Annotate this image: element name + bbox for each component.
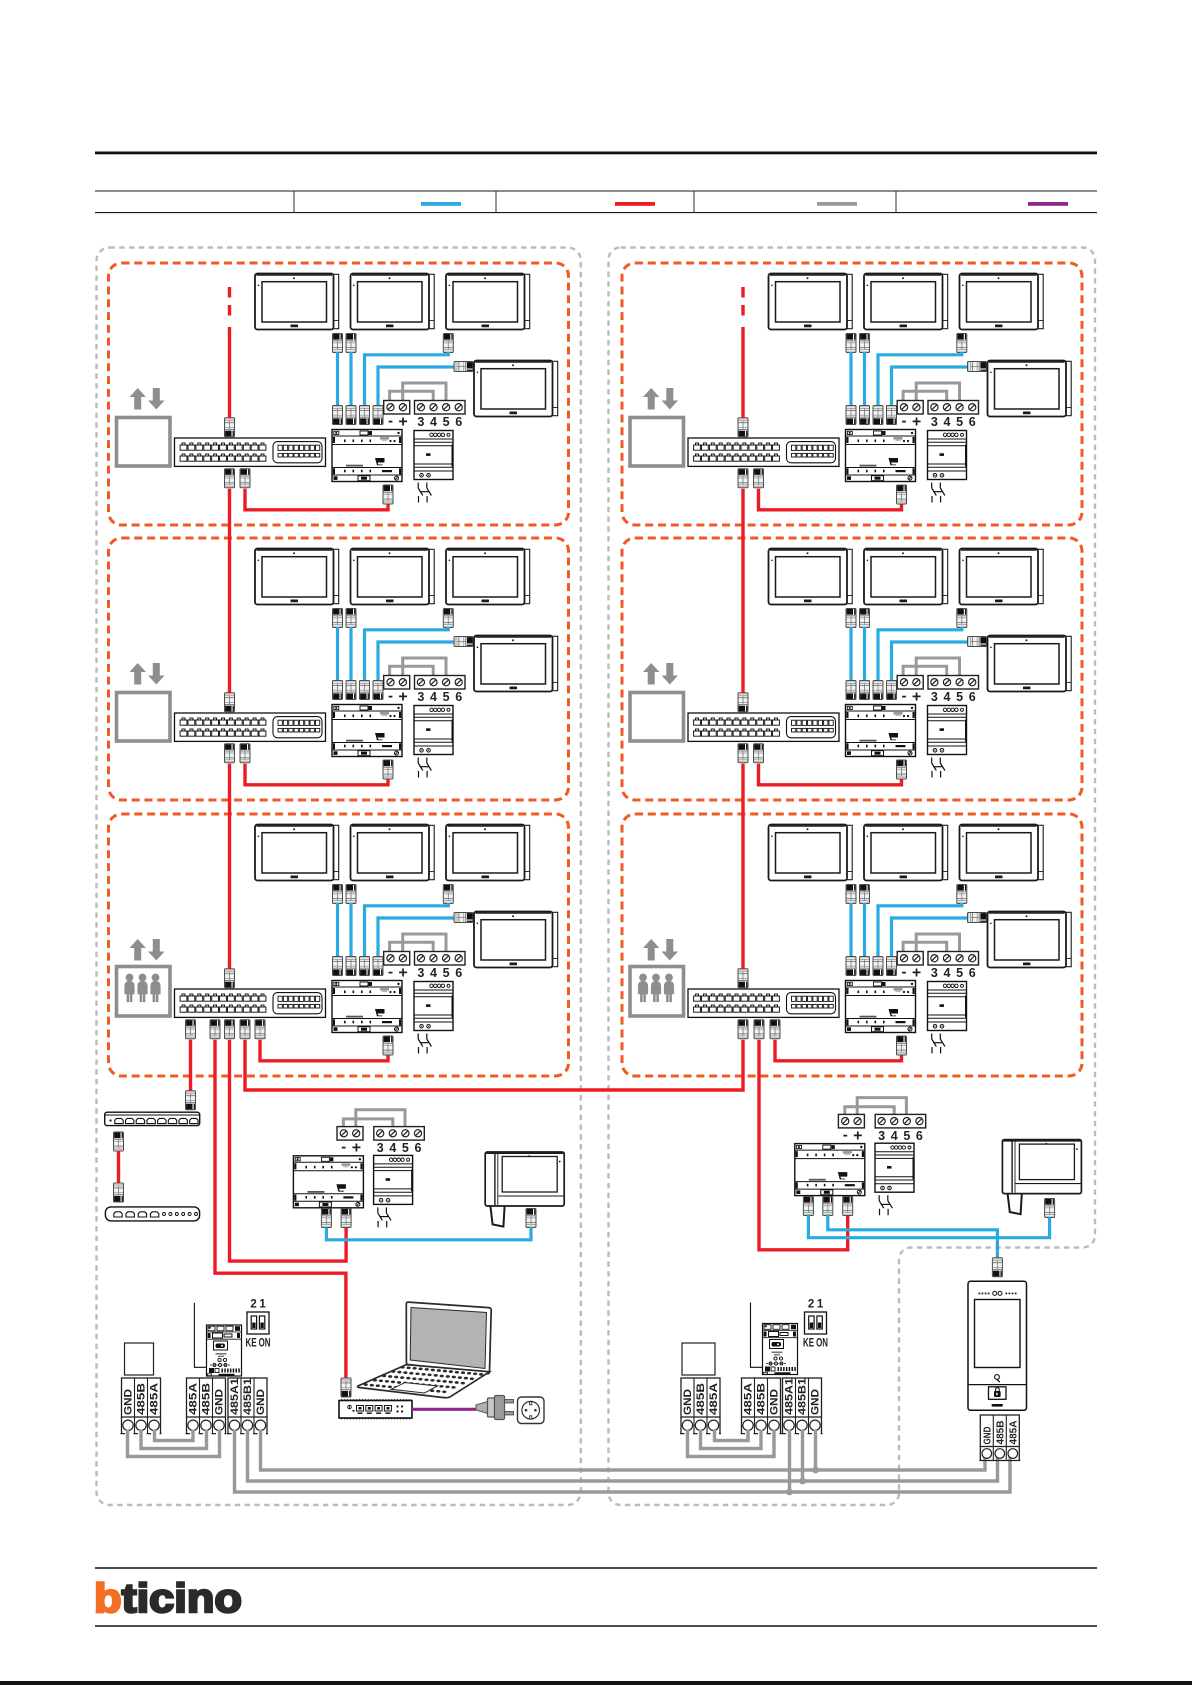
- svg-text:+: +: [352, 1140, 361, 1157]
- svg-text:+: +: [912, 414, 921, 431]
- svg-text:-: -: [902, 688, 907, 705]
- svg-text:3: 3: [931, 966, 938, 980]
- svg-text:GND: GND: [123, 1389, 135, 1415]
- svg-text:-: -: [902, 964, 907, 981]
- svg-text:GND: GND: [810, 1389, 822, 1415]
- svg-text:3: 3: [931, 415, 938, 429]
- svg-text:6: 6: [415, 1141, 422, 1155]
- svg-text:-: -: [388, 688, 393, 705]
- svg-text:4: 4: [389, 1141, 396, 1155]
- svg-text:6: 6: [969, 690, 976, 704]
- svg-text:bticino: bticino: [94, 1575, 242, 1621]
- svg-text:GND: GND: [983, 1427, 994, 1445]
- svg-text:5: 5: [956, 690, 963, 704]
- svg-text:485B: 485B: [201, 1383, 213, 1415]
- svg-text:485A: 485A: [149, 1383, 161, 1415]
- svg-text:4: 4: [944, 415, 951, 429]
- svg-text:485A: 485A: [743, 1383, 755, 1415]
- svg-text:5: 5: [903, 1129, 910, 1143]
- svg-text:3: 3: [377, 1141, 384, 1155]
- svg-text:485B: 485B: [996, 1421, 1007, 1445]
- svg-text:485A1: 485A1: [229, 1378, 241, 1415]
- svg-text:+: +: [398, 965, 407, 982]
- svg-text:1: 1: [817, 1299, 824, 1311]
- svg-text:-: -: [341, 1139, 346, 1156]
- svg-text:3: 3: [417, 415, 424, 429]
- svg-text:+: +: [398, 689, 407, 706]
- svg-text:6: 6: [969, 966, 976, 980]
- svg-text:5: 5: [443, 966, 450, 980]
- svg-text:5: 5: [956, 415, 963, 429]
- svg-text:485A: 485A: [708, 1383, 720, 1415]
- svg-text:+: +: [912, 689, 921, 706]
- svg-text:485B1: 485B1: [797, 1378, 809, 1415]
- svg-text:6: 6: [916, 1129, 923, 1143]
- svg-text:485B: 485B: [136, 1383, 148, 1415]
- svg-text:485B: 485B: [695, 1383, 707, 1415]
- svg-text:485A: 485A: [188, 1383, 200, 1415]
- svg-text:+: +: [853, 1127, 862, 1144]
- svg-text:5: 5: [443, 690, 450, 704]
- svg-text:6: 6: [455, 690, 462, 704]
- svg-text:3: 3: [417, 690, 424, 704]
- svg-text:+: +: [398, 414, 407, 431]
- svg-text:GND: GND: [769, 1389, 781, 1415]
- svg-text:KE ON: KE ON: [803, 1336, 828, 1350]
- svg-text:GND: GND: [214, 1389, 226, 1415]
- svg-text:-: -: [388, 964, 393, 981]
- svg-text:485A: 485A: [1009, 1420, 1020, 1445]
- svg-text:6: 6: [455, 966, 462, 980]
- svg-text:5: 5: [443, 415, 450, 429]
- svg-text:6: 6: [455, 415, 462, 429]
- svg-text:2: 2: [250, 1299, 256, 1311]
- svg-text:1: 1: [259, 1299, 266, 1311]
- svg-text:4: 4: [430, 415, 437, 429]
- svg-text:3: 3: [878, 1129, 885, 1143]
- svg-text:4: 4: [891, 1129, 898, 1143]
- svg-text:3: 3: [417, 966, 424, 980]
- svg-text:6: 6: [969, 415, 976, 429]
- svg-text:4: 4: [430, 966, 437, 980]
- svg-text:KE ON: KE ON: [246, 1336, 271, 1350]
- svg-text:-: -: [843, 1126, 848, 1143]
- svg-text:4: 4: [430, 690, 437, 704]
- svg-text:-: -: [902, 413, 907, 430]
- svg-text:GND: GND: [682, 1389, 694, 1415]
- svg-text:4: 4: [944, 966, 951, 980]
- svg-text:-: -: [388, 413, 393, 430]
- svg-text:+: +: [912, 965, 921, 982]
- svg-text:GND: GND: [255, 1389, 267, 1415]
- svg-text:485A1: 485A1: [784, 1378, 796, 1415]
- svg-text:2: 2: [808, 1299, 814, 1311]
- svg-text:485B: 485B: [756, 1383, 768, 1415]
- svg-text:4: 4: [944, 690, 951, 704]
- svg-text:485B1: 485B1: [242, 1378, 254, 1415]
- svg-text:5: 5: [402, 1141, 409, 1155]
- svg-text:5: 5: [956, 966, 963, 980]
- svg-text:3: 3: [931, 690, 938, 704]
